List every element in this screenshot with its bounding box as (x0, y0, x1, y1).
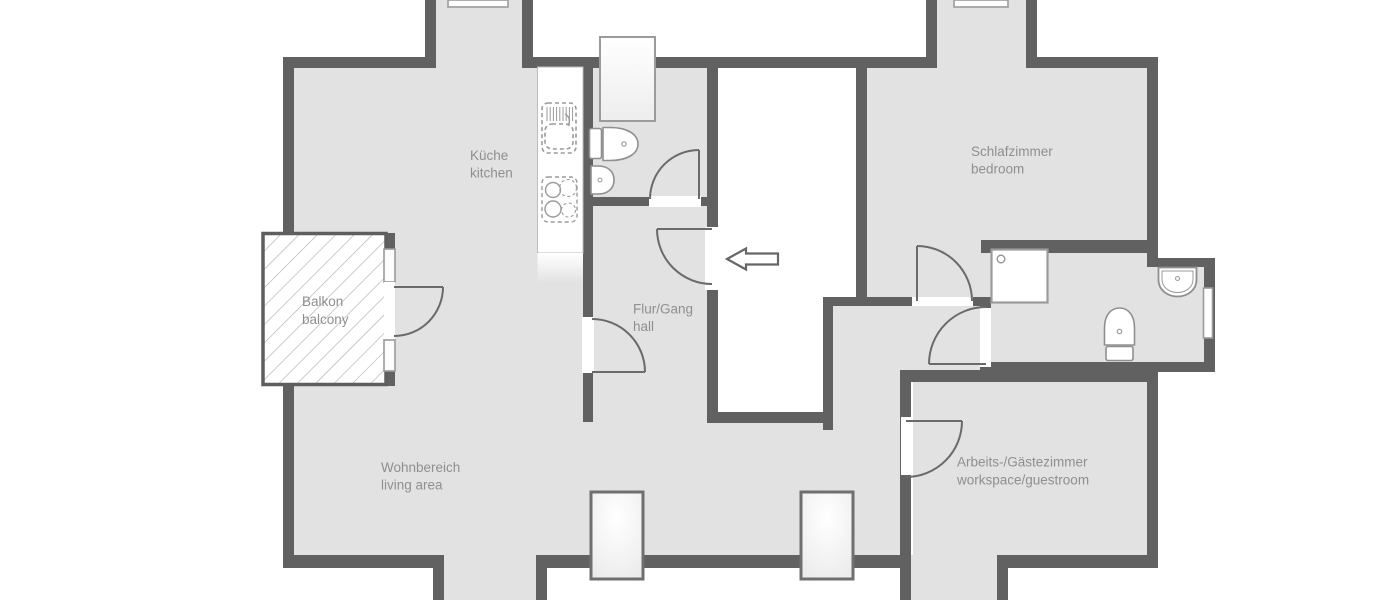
wall-segment (583, 197, 650, 206)
kitchen-bay-window (448, 0, 508, 7)
floor-workspace-bay (911, 555, 997, 600)
wall-segment (997, 555, 1158, 568)
balcony-side-window (384, 340, 395, 371)
entry-door-opening (705, 227, 719, 290)
wall-segment (283, 385, 294, 568)
counter-fade (538, 253, 584, 283)
bathroom-door-opening (980, 308, 991, 367)
wall-segment (707, 290, 718, 412)
wall-segment (583, 373, 593, 422)
floor-kitchen-bay (433, 0, 523, 68)
label-workspace-de: Arbeits-/Gästezimmer (957, 455, 1088, 470)
wall-segment (522, 0, 533, 68)
balcony-side-window (384, 249, 395, 282)
balcony-structure (263, 234, 386, 385)
label-living-de: Wohnbereich (381, 460, 460, 475)
bathroom-toilet (1105, 308, 1135, 361)
label-balcony-de: Balkon (302, 294, 343, 309)
label-kitchen-de: Küche (470, 148, 508, 163)
label-living-en: living area (381, 478, 443, 493)
label-hall-de: Flur/Gang (633, 302, 693, 317)
wall-segment (533, 57, 926, 68)
bedroom-bay-window (954, 0, 1008, 7)
wall-segment (1147, 57, 1158, 267)
wall-segment (425, 0, 436, 68)
wc-door-opening (649, 196, 701, 207)
floor-corridor-bath (904, 306, 991, 376)
bathroom-sink (1159, 268, 1197, 297)
wall-segment (547, 555, 592, 568)
label-hall-en: hall (633, 319, 654, 334)
wall-segment (283, 57, 294, 233)
living-window-1 (591, 492, 643, 579)
wall-segment (433, 555, 444, 600)
counter-top (538, 67, 584, 253)
wc-sink (591, 166, 614, 194)
wall-segment (926, 0, 937, 68)
label-balcony-en: balcony (302, 312, 349, 327)
wall-segment (707, 412, 833, 423)
bathroom-window (1204, 288, 1213, 338)
wall-segment (1037, 57, 1158, 68)
label-bedroom-de: Schlafzimmer (971, 144, 1053, 159)
bedroom-door-opening (912, 297, 973, 306)
floor-bedroom-bay (937, 0, 1027, 68)
shower (992, 250, 1048, 303)
wall-segment (997, 555, 1008, 600)
living-window-2 (801, 492, 853, 579)
balcony-door-opening (384, 282, 395, 340)
wall-segment (856, 57, 867, 298)
wall-segment (643, 555, 802, 568)
wall-segment (283, 57, 425, 68)
wall-segment (536, 555, 547, 600)
label-kitchen-en: kitchen (470, 166, 513, 181)
workspace-door-opening (901, 417, 913, 475)
hall-living-door-opening (582, 317, 594, 373)
floor-plan-page: Küche kitchen Balkon balcony Flur/Gang h… (0, 0, 1400, 600)
wall-segment (1147, 370, 1158, 568)
kitchen-counter (538, 67, 584, 283)
wall-segment (902, 370, 1158, 382)
floor-living-bay (444, 555, 536, 600)
wall-segment (900, 370, 911, 600)
wall-segment (283, 555, 433, 568)
wc-window (600, 37, 655, 121)
wall-segment (707, 67, 718, 227)
label-bedroom-en: bedroom (971, 162, 1024, 177)
wall-segment (823, 297, 833, 430)
label-workspace-en: workspace/guestroom (956, 473, 1089, 488)
balcony-hatch (263, 234, 386, 385)
stairwell-lower (718, 298, 823, 413)
wc-toilet (590, 128, 639, 161)
kitchen-sink (542, 103, 576, 153)
wall-segment (1026, 0, 1037, 68)
floor-plan-svg: Küche kitchen Balkon balcony Flur/Gang h… (0, 0, 1400, 600)
